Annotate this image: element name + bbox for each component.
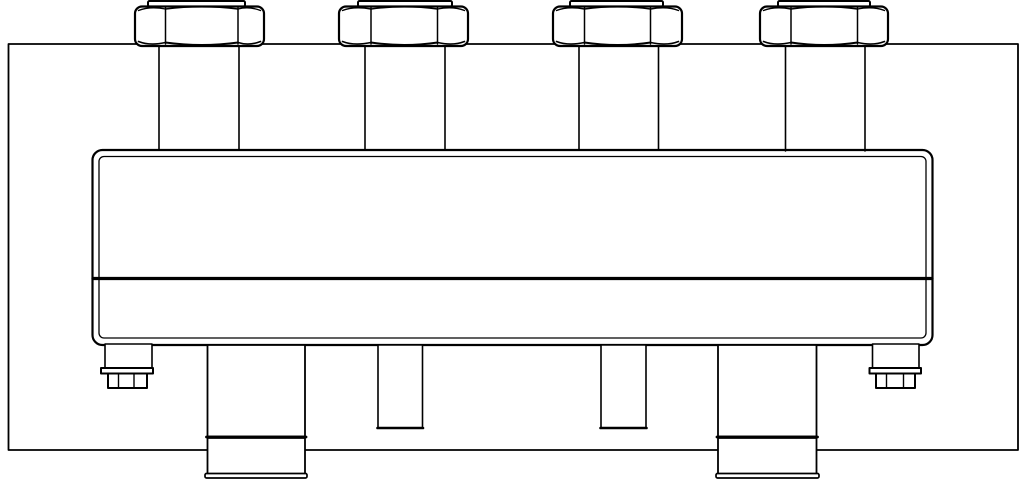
manifold-body xyxy=(93,150,933,345)
drawing-canvas xyxy=(0,0,1024,480)
technical-drawing xyxy=(0,0,1024,480)
bottom-pipe-stub-2 xyxy=(601,345,647,428)
drain-fitting-right xyxy=(870,344,922,388)
union-nut-connection-1 xyxy=(135,1,264,151)
support-bracket-right xyxy=(716,345,819,478)
bottom-pipe-stub-1 xyxy=(378,345,424,428)
union-nut-connection-2 xyxy=(339,1,468,151)
union-nut-connection-3 xyxy=(553,1,682,151)
union-nut-connection-4 xyxy=(760,1,888,151)
drain-fitting-left xyxy=(101,344,153,388)
support-bracket-left xyxy=(205,345,307,478)
